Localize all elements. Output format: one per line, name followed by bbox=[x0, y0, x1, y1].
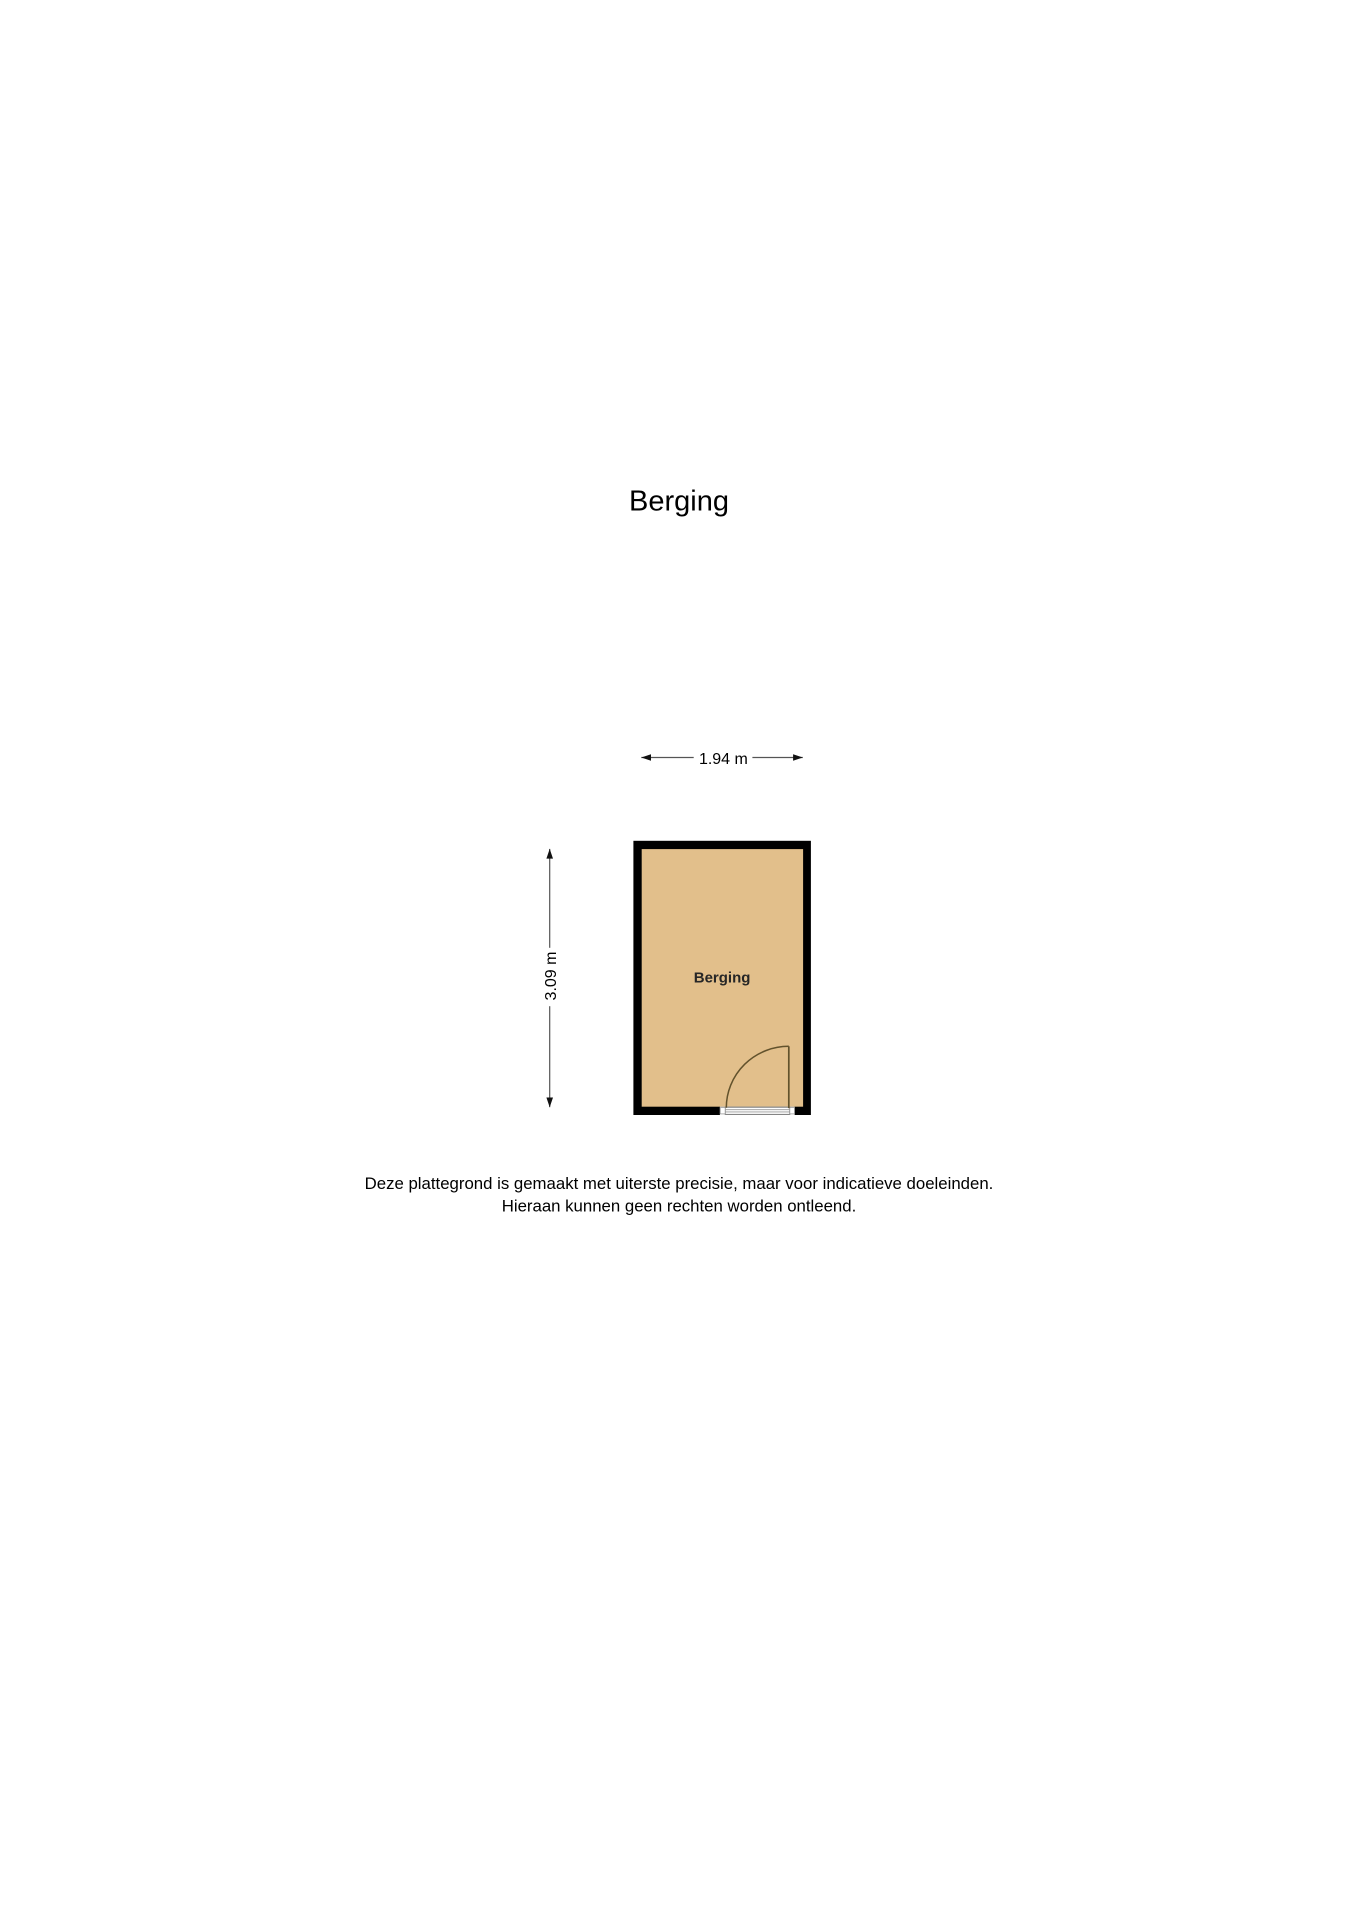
svg-text:Deze plattegrond is gemaakt me: Deze plattegrond is gemaakt met uiterste… bbox=[365, 1174, 994, 1193]
svg-text:Berging: Berging bbox=[694, 970, 751, 987]
svg-text:3.09 m: 3.09 m bbox=[543, 952, 560, 1001]
svg-text:Berging: Berging bbox=[629, 486, 729, 518]
svg-text:1.94 m: 1.94 m bbox=[699, 751, 748, 768]
svg-text:Hieraan kunnen geen rechten wo: Hieraan kunnen geen rechten worden ontle… bbox=[502, 1196, 857, 1215]
